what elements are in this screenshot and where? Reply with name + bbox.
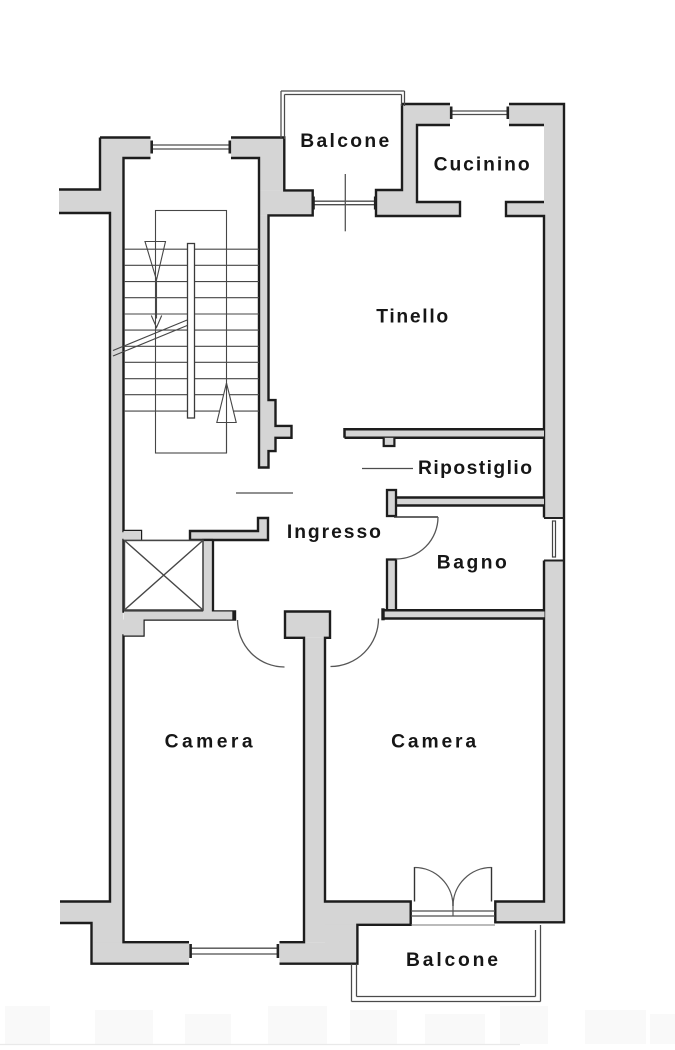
svg-text:Ingresso: Ingresso bbox=[287, 522, 381, 543]
svg-text:Balcone: Balcone bbox=[300, 131, 389, 152]
svg-text:Tinello: Tinello bbox=[376, 307, 448, 328]
svg-text:Ripostiglio: Ripostiglio bbox=[418, 458, 532, 479]
svg-text:Balcone: Balcone bbox=[406, 950, 498, 971]
svg-text:Bagno: Bagno bbox=[437, 552, 507, 573]
